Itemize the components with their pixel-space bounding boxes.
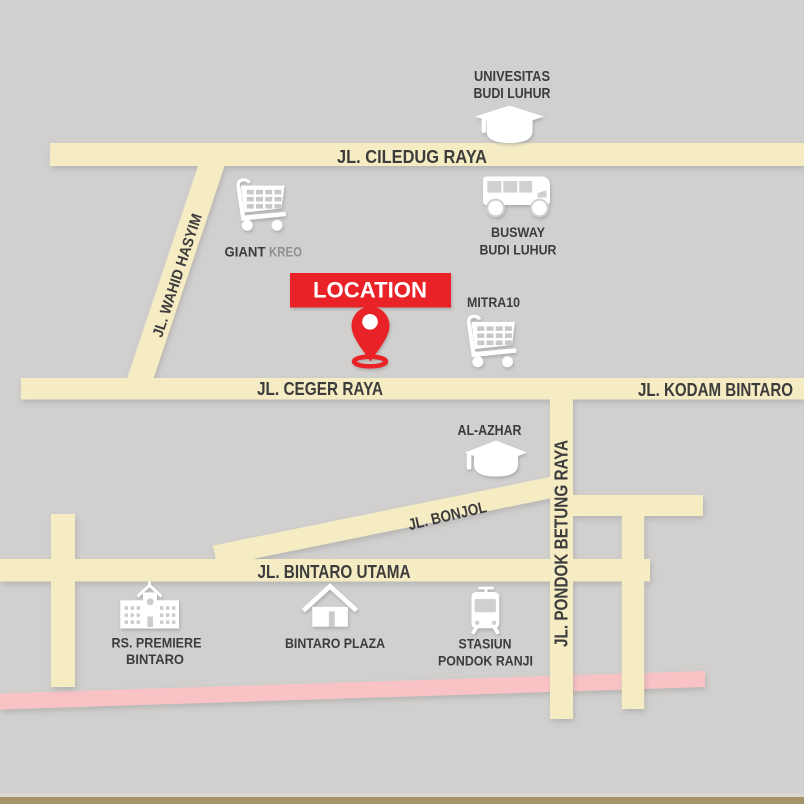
svg-text:STASIUN: STASIUN bbox=[459, 636, 512, 652]
svg-text:PONDOK RANJI: PONDOK RANJI bbox=[438, 653, 533, 669]
svg-text:JL. BINTARO UTAMA: JL. BINTARO UTAMA bbox=[258, 562, 411, 582]
svg-text:AL-AZHAR: AL-AZHAR bbox=[458, 422, 522, 439]
svg-text:JL. CILEDUG RAYA: JL. CILEDUG RAYA bbox=[337, 147, 487, 167]
svg-text:BINTARO PLAZA: BINTARO PLAZA bbox=[285, 635, 385, 651]
svg-text:GIANT: GIANT bbox=[225, 244, 266, 260]
svg-text:JL. CEGER RAYA: JL. CEGER RAYA bbox=[257, 379, 383, 399]
svg-text:JL. KODAM BINTARO: JL. KODAM BINTARO bbox=[638, 380, 793, 400]
svg-text:LOCATION: LOCATION bbox=[313, 278, 427, 303]
svg-text:JL. PONDOK BETUNG RAYA: JL. PONDOK BETUNG RAYA bbox=[552, 440, 572, 647]
svg-text:BUDI LUHUR: BUDI LUHUR bbox=[474, 85, 551, 102]
svg-text:BUDI LUHUR: BUDI LUHUR bbox=[480, 242, 557, 258]
svg-text:BINTARO: BINTARO bbox=[126, 651, 184, 667]
svg-text:RS. PREMIERE: RS. PREMIERE bbox=[112, 635, 202, 651]
svg-text:KREO: KREO bbox=[269, 244, 302, 260]
svg-text:UNIVESITAS: UNIVESITAS bbox=[474, 68, 550, 85]
svg-text:MITRA10: MITRA10 bbox=[467, 294, 520, 310]
svg-text:BUSWAY: BUSWAY bbox=[491, 224, 546, 240]
